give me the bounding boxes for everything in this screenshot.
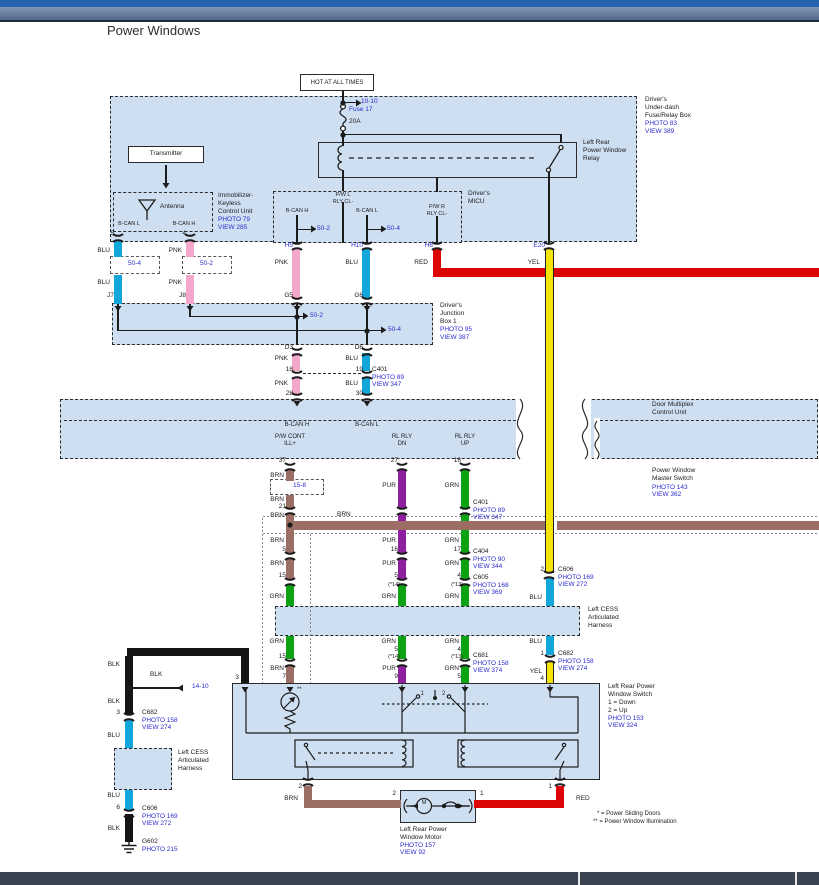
grn-10: GRN — [445, 666, 459, 673]
blu-2: BLU — [345, 381, 358, 388]
cess-harness-box-left — [114, 748, 172, 790]
pwms-label-2: Master Switch — [652, 476, 693, 483]
immo-blu-1: BLU — [97, 248, 110, 255]
mux-up: UP — [461, 441, 469, 447]
pwms-label-1: Power Window — [652, 468, 695, 475]
immo-pnk-1: PNK — [169, 248, 182, 255]
col-yel: YEL — [528, 260, 540, 267]
ref-14-10[interactable]: 14-10 — [192, 684, 209, 691]
wire-16b-pur — [398, 513, 406, 553]
connection-line — [342, 202, 344, 243]
connection-line — [296, 304, 298, 345]
switch-label-2: Window Switch — [608, 692, 652, 699]
d6-blu: BLU — [345, 356, 358, 363]
immo-blu-2: BLU — [97, 280, 110, 287]
jbox-label-3: Box 1 — [440, 319, 457, 326]
motor-view[interactable]: VIEW 92 — [400, 850, 426, 857]
wire-pin7-brn — [286, 665, 294, 683]
door-boundary-dotted-line — [309, 533, 311, 683]
immo-label-1: Immobilizer- — [218, 193, 253, 200]
c404: C404 — [473, 549, 489, 556]
col-pnk: PNK — [275, 260, 288, 267]
status-bar — [0, 872, 819, 885]
pin-5d: 5 — [394, 647, 398, 654]
brn-motor-h — [304, 800, 401, 808]
master-switch-inner-top-right — [600, 420, 815, 421]
col-blu: BLU — [345, 260, 358, 267]
ref-15-8[interactable]: 15-8 — [293, 483, 306, 490]
switch-out-2: 2 — [298, 784, 302, 791]
pin-1-c682: 1 — [540, 651, 544, 658]
wire-d6-blu — [362, 353, 370, 371]
immo-view[interactable]: VIEW 285 — [218, 225, 247, 232]
wire-c606-blu — [546, 577, 554, 606]
brn-5: BRN — [270, 561, 284, 568]
brn-6: BRN — [270, 666, 284, 673]
antenna: Antenna — [160, 204, 184, 211]
wire-37-brn-b — [286, 495, 294, 508]
wire-15-grn — [461, 513, 469, 553]
pin-3-c682: 3 — [116, 710, 120, 717]
c404-view[interactable]: VIEW 344 — [473, 564, 502, 571]
red-out: RED — [576, 796, 590, 803]
pin-7: 7 — [282, 674, 286, 681]
pin-9: 9 — [394, 674, 398, 681]
pin-15b: 15 — [279, 654, 286, 661]
pin-5c: 5 — [394, 573, 398, 580]
terminal-connector-icon — [285, 659, 295, 661]
blu-right-1: BLU — [529, 595, 542, 602]
c401-mid-view[interactable]: VIEW 347 — [473, 515, 502, 522]
pin-17: 17 — [454, 547, 461, 554]
wire-h10-blu — [362, 249, 370, 298]
blk-horiz — [127, 648, 249, 656]
switch-out-1: 1 — [548, 784, 552, 791]
pin-16: 16 — [454, 458, 461, 465]
brn-bus-label: BRN — [337, 512, 351, 519]
pin-5e: 5 — [457, 674, 461, 681]
c682-right: C682 — [558, 651, 574, 658]
c401-connector-line — [303, 373, 361, 374]
blu-left-upper — [125, 719, 133, 748]
page-title: Power Windows — [107, 23, 200, 38]
relay-label-2: Power Window — [583, 148, 626, 155]
door-boundary-dotted-line — [261, 517, 263, 683]
hot-at-all-times: HOT AT ALL TIMES — [311, 80, 364, 86]
blk-4: BLK — [108, 826, 120, 833]
switch-label-4: 2 = Up — [608, 708, 627, 715]
immo-photo[interactable]: PHOTO 79 — [218, 217, 250, 224]
relay-label-1: Left Rear — [583, 140, 610, 147]
wire-e20-yel — [545, 249, 554, 573]
wire-bcanh-pnk-2 — [186, 275, 194, 304]
box-break-gap — [594, 418, 600, 460]
bulb-note: ** — [297, 687, 302, 693]
grn-6: GRN — [445, 594, 459, 601]
pin-27: 27 — [391, 458, 398, 465]
micu-label-1: Driver's — [468, 191, 490, 198]
micu-pin-bcanh: B-CAN H — [286, 209, 309, 215]
pnk-2: PNK — [275, 381, 288, 388]
grn-5: GRN — [382, 594, 396, 601]
c606-right-view[interactable]: VIEW 272 — [558, 582, 587, 589]
wire-bcanl-blu-2 — [114, 275, 122, 304]
note-13b: (*13) — [451, 655, 463, 661]
brn-out: BRN — [284, 796, 298, 803]
pur-3: PUR — [382, 561, 396, 568]
connection-line — [436, 178, 438, 192]
c682-left-view[interactable]: VIEW 274 — [142, 725, 171, 732]
ref-50-2-immo[interactable]: 50-2 — [200, 261, 213, 268]
pin-6-c606: 6 — [116, 805, 120, 812]
connection-line — [342, 170, 344, 191]
pin-21: 21 — [279, 504, 286, 511]
wire-16c-pur — [398, 558, 406, 579]
box-break-gap — [516, 398, 523, 460]
cessw-label-3: Harness — [588, 623, 612, 630]
connection-line — [366, 304, 368, 345]
door-boundary-dotted-line — [262, 532, 819, 534]
doormux-label-1: Door Multiplex — [652, 402, 694, 409]
connection-line — [165, 165, 167, 183]
contact-1: 1 — [421, 691, 424, 697]
connection-line — [117, 304, 119, 331]
connection-line — [189, 316, 303, 317]
pin-e20[interactable]: E20 — [533, 243, 545, 250]
switch-view[interactable]: VIEW 324 — [608, 723, 637, 730]
connection-line — [436, 216, 438, 243]
pwms-view[interactable]: VIEW 362 — [652, 492, 681, 499]
wire-19-blu — [362, 377, 370, 394]
wire-17-grn — [461, 558, 469, 579]
pin-d6: D6 — [355, 345, 363, 352]
wire-15-grn2 — [286, 584, 294, 606]
terminal-connector-icon — [362, 371, 372, 373]
top-toolbar-bar — [0, 7, 819, 20]
note-14b: (*14) — [388, 655, 400, 661]
micu-pin-pwr-2: RLY CL- — [427, 212, 448, 218]
grn-1: GRN — [445, 483, 459, 490]
status-bar-divider — [578, 872, 580, 885]
mux-ill: ILL+ — [284, 441, 296, 447]
immo-label-2: Keyless — [218, 201, 241, 208]
window-switch-box — [232, 683, 600, 780]
c605-view[interactable]: VIEW 369 — [473, 590, 502, 597]
pin-18: 18 — [286, 367, 293, 374]
brn-bus-right — [557, 521, 819, 530]
terminal-connector-icon — [292, 348, 302, 350]
contact-2: 2 — [442, 691, 445, 697]
c606-left: C606 — [142, 806, 158, 813]
wire-21-brn — [286, 513, 294, 553]
jbox-label-1: Driver's — [440, 303, 462, 310]
blk-2: BLK — [150, 672, 162, 679]
fusebox-label-1: Driver's — [645, 97, 667, 104]
master-switch-inner-top-left — [64, 420, 516, 421]
micu-pin-pwl-2: RLY CL- — [333, 200, 354, 206]
motor-pin-2: 2 — [392, 791, 396, 798]
wire-18-pnk — [292, 377, 300, 394]
mux-bcanl: B-CAN L — [355, 422, 379, 428]
blk-vert-right — [241, 656, 249, 683]
blk-3: BLK — [108, 699, 120, 706]
motor-m: M — [422, 801, 427, 807]
pin-j8: J8 — [179, 293, 186, 300]
fusebox-photo[interactable]: PHOTO 83 — [645, 121, 677, 128]
motor-pin-1: 1 — [480, 791, 484, 798]
jbox-view[interactable]: VIEW 387 — [440, 335, 469, 342]
ref-50-4-jbox[interactable]: 50-4 — [388, 327, 401, 334]
d3-pnk: PNK — [275, 356, 288, 363]
micu-pin-bcanl: B-CAN L — [356, 209, 378, 215]
connection-line — [367, 229, 381, 230]
relay-box — [318, 142, 577, 178]
junction-box-1 — [112, 303, 433, 345]
pin-h5[interactable]: H5 — [285, 243, 293, 250]
jbox-photo[interactable]: PHOTO 95 — [440, 327, 472, 334]
box-break-gap — [584, 398, 591, 460]
grn-3: GRN — [445, 561, 459, 568]
ref-10-10[interactable]: 10-10 — [361, 99, 378, 106]
connection-line — [297, 229, 311, 230]
blk-1: BLK — [108, 662, 120, 669]
c606-left-view[interactable]: VIEW 272 — [142, 821, 171, 828]
pin-d3: D3 — [285, 345, 293, 352]
c681-view[interactable]: VIEW 374 — [473, 668, 502, 675]
pin-37: 37 — [279, 458, 286, 465]
c681: C681 — [473, 653, 489, 660]
wire-d3-pnk — [292, 353, 300, 371]
fuse-amps: 20A — [349, 119, 361, 126]
grn-8: GRN — [382, 639, 396, 646]
pin-h6[interactable]: H6 — [425, 243, 433, 250]
terminal-connector-icon — [285, 463, 295, 465]
note-13a: (*13) — [451, 583, 463, 589]
status-bar-divider — [795, 872, 797, 885]
immo-pin-bcanh: B-CAN H — [173, 222, 196, 228]
ground-icon — [122, 842, 137, 853]
footnote-2: ** = Power Window Illumination — [593, 819, 677, 825]
mux-rlrly2: RL RLY — [455, 434, 475, 440]
window-motor-box — [400, 790, 476, 823]
wire-bcanl-blu-1 — [114, 240, 122, 257]
switch-label-3: 1 = Down — [608, 700, 636, 707]
note-14a: (*14) — [388, 583, 400, 589]
ground-photo[interactable]: PHOTO 215 — [142, 847, 178, 854]
relay-label-3: Relay — [583, 156, 600, 163]
fuse-17[interactable]: Fuse 17 — [349, 107, 373, 114]
mux-rlrly1: RL RLY — [392, 434, 412, 440]
brn-1: BRN — [270, 473, 284, 480]
c401-mid: C401 — [473, 500, 489, 507]
blu-left-lower — [125, 790, 133, 810]
c606-right: C606 — [558, 567, 574, 574]
pin-h10[interactable]: H10 — [351, 243, 363, 250]
pin-2-c606: 2 — [540, 567, 544, 574]
pur-2: PUR — [382, 538, 396, 545]
terminal-connector-icon — [362, 348, 372, 350]
micu-label-2: MICU — [468, 199, 485, 206]
footnote-1: * = Power Sliding Doors — [597, 811, 661, 817]
connection-line — [548, 172, 550, 243]
pin-g5: G5 — [284, 293, 293, 300]
terminal-connector-icon — [292, 371, 302, 373]
ref-50-2-micu[interactable]: 50-2 — [317, 226, 330, 233]
c401-top-view[interactable]: VIEW 347 — [372, 382, 401, 389]
fusebox-view[interactable]: VIEW 389 — [645, 129, 674, 136]
pin-19: 19 — [356, 367, 363, 374]
door-multiplex-box-left — [60, 399, 520, 459]
c682-right-view[interactable]: VIEW 274 — [558, 666, 587, 673]
pin-j7: J7 — [107, 293, 114, 300]
grn-2: GRN — [445, 538, 459, 545]
mux-dn: DN — [398, 441, 407, 447]
blu-right-2: BLU — [529, 639, 542, 646]
cessl-label-3: Harness — [178, 766, 202, 773]
blk-vert-left — [125, 656, 133, 714]
jbox-label-2: Junction — [440, 311, 464, 318]
terminal-connector-icon — [460, 463, 470, 465]
wire-pin4-yel — [546, 661, 554, 683]
c401-top: C401 — [372, 367, 388, 374]
wire-37-brn-a — [286, 469, 294, 481]
wire-16-grn — [461, 469, 469, 508]
blk-to-ground — [125, 814, 133, 842]
wire-c682-blu — [546, 636, 554, 655]
ground-g602: G602 — [142, 839, 158, 846]
pur-4: PUR — [382, 666, 396, 673]
grn-4: GRN — [270, 594, 284, 601]
cessl-label-1: Left CESS — [178, 750, 208, 757]
cessw-label-1: Left CESS — [588, 607, 618, 614]
connection-line — [342, 134, 562, 135]
c605: C605 — [473, 575, 489, 582]
terminal-connector-icon — [545, 655, 555, 657]
motor-label-1: Left Rear Power — [400, 827, 447, 834]
immo-pin-4: 4 — [182, 231, 186, 238]
grn-9: GRN — [445, 639, 459, 646]
pin-3-switch: 3 — [235, 675, 239, 682]
cessl-label-2: Articulated — [178, 758, 209, 765]
pin-4b: 4 — [457, 647, 461, 654]
mux-pwcont: P/W CONT — [275, 434, 305, 440]
connection-line — [560, 135, 562, 143]
wire-27-pur — [398, 469, 406, 508]
col-red: RED — [414, 260, 428, 267]
immo-pin-bcanl: B-CAN L — [118, 222, 140, 228]
terminal-connector-icon — [397, 463, 407, 465]
pin-16b: 16 — [391, 547, 398, 554]
cess-harness-box-wide — [275, 606, 580, 636]
pur-1: PUR — [382, 483, 396, 490]
pin-5b: 5 — [282, 547, 286, 554]
connection-line — [133, 687, 183, 689]
wire-pin9-pur — [398, 665, 406, 683]
red-motor-h — [474, 800, 564, 808]
connection-line — [117, 330, 381, 331]
motor-label-2: Window Motor — [400, 835, 442, 842]
ref-50-4-immo[interactable]: 50-4 — [128, 261, 141, 268]
mux-bcanh: B-CAN H — [285, 422, 310, 428]
connection-line — [343, 102, 356, 103]
transmitter: Transmitter — [150, 151, 183, 158]
blu-left-2: BLU — [107, 793, 120, 800]
pin-30: 30 — [356, 391, 363, 398]
c682-left: C682 — [142, 710, 158, 717]
cessw-label-2: Articulated — [588, 615, 619, 622]
fusebox-label-3: Fuse/Relay Box — [645, 113, 691, 120]
wire-h6-red-h — [433, 268, 819, 277]
connection-line — [342, 135, 344, 146]
immo-pin-5: 5 — [110, 231, 114, 238]
brn-4: BRN — [270, 538, 284, 545]
switch-label-1: Left Rear Power — [608, 684, 655, 691]
wire-h5-pnk — [292, 249, 300, 298]
ref-50-2-jbox[interactable]: 50-2 — [310, 313, 323, 320]
wire-bcanh-pnk-1 — [186, 240, 194, 257]
ref-50-4-micu[interactable]: 50-4 — [387, 226, 400, 233]
grn-7: GRN — [270, 639, 284, 646]
immo-label-3: Control Unit — [218, 209, 252, 216]
doormux-label-2: Control Unit — [652, 410, 686, 417]
door-multiplex-box-right — [587, 399, 818, 459]
brn-bus-left — [286, 521, 545, 530]
wire-grn-below-1 — [286, 636, 294, 659]
pin-g6: G6 — [354, 293, 363, 300]
pin-4c: 4 — [540, 676, 544, 683]
blu-left-1: BLU — [107, 733, 120, 740]
wiring-diagram-page: Power Windows — [0, 0, 819, 885]
fusebox-label-2: Under-dash — [645, 105, 679, 112]
pin-4a: 4 — [457, 573, 461, 580]
top-accent-bar — [0, 0, 819, 7]
micu-box — [273, 191, 462, 243]
pin-15a: 15 — [279, 573, 286, 580]
wire-pin5-grn — [461, 665, 469, 683]
immo-pnk-2: PNK — [169, 280, 182, 287]
top-bar-edge — [0, 20, 819, 22]
wire-5-brn — [286, 558, 294, 579]
brn-3: BRN — [270, 513, 284, 520]
pin-28: 28 — [286, 391, 293, 398]
